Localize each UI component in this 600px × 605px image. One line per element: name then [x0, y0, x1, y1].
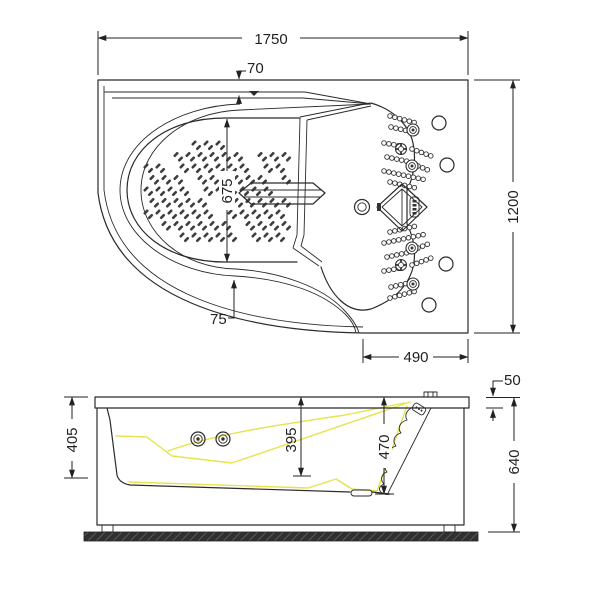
deck-circles [422, 116, 454, 312]
dim-overall-height: 640 [506, 449, 523, 474]
dim-apron-gap: 75 [210, 311, 227, 328]
side-view: 405 395 470 50 6 [64, 372, 523, 541]
antislip-pattern [143, 140, 292, 243]
faucet-unit [377, 184, 427, 231]
rim-faucet-edge [424, 392, 437, 397]
dim-rim-height: 405 [64, 427, 81, 452]
dim-seat-depth: 470 [376, 434, 393, 459]
drain [355, 200, 370, 215]
plan-view: 1750 70 675 75 1200 [98, 30, 522, 366]
plan-ledge-a [141, 104, 371, 333]
side-jet-2 [216, 432, 230, 446]
bathtub-technical-drawing: 1750 70 675 75 1200 [0, 0, 600, 600]
floor-hatch [84, 532, 478, 541]
control-pad [410, 197, 419, 217]
dim-basin-depth: 395 [283, 427, 300, 452]
dim-overall-length: 1750 [254, 31, 287, 48]
inner-profile-highlight [116, 402, 410, 491]
seat-bowl-outline [321, 103, 414, 310]
dim-seat-section: 490 [403, 349, 428, 366]
ledge-tick [249, 91, 259, 96]
backrest-flare-bottom [293, 246, 322, 266]
dim-basin-width: 675 [219, 178, 236, 203]
slope-control-panel [411, 402, 426, 416]
foot-right [444, 525, 455, 532]
plan-top-ledge-2 [112, 98, 371, 104]
side-jet-1 [191, 432, 205, 446]
faucet-spout [377, 203, 381, 211]
dim-overall-width: 1200 [505, 190, 522, 223]
dim-rim-thickness: 50 [504, 372, 521, 389]
foot-left [102, 525, 113, 532]
dim-rim-width: 70 [247, 60, 264, 77]
side-dimensions: 405 395 470 50 6 [64, 372, 523, 532]
drawing-canvas: 1750 70 675 75 1200 [0, 0, 600, 600]
